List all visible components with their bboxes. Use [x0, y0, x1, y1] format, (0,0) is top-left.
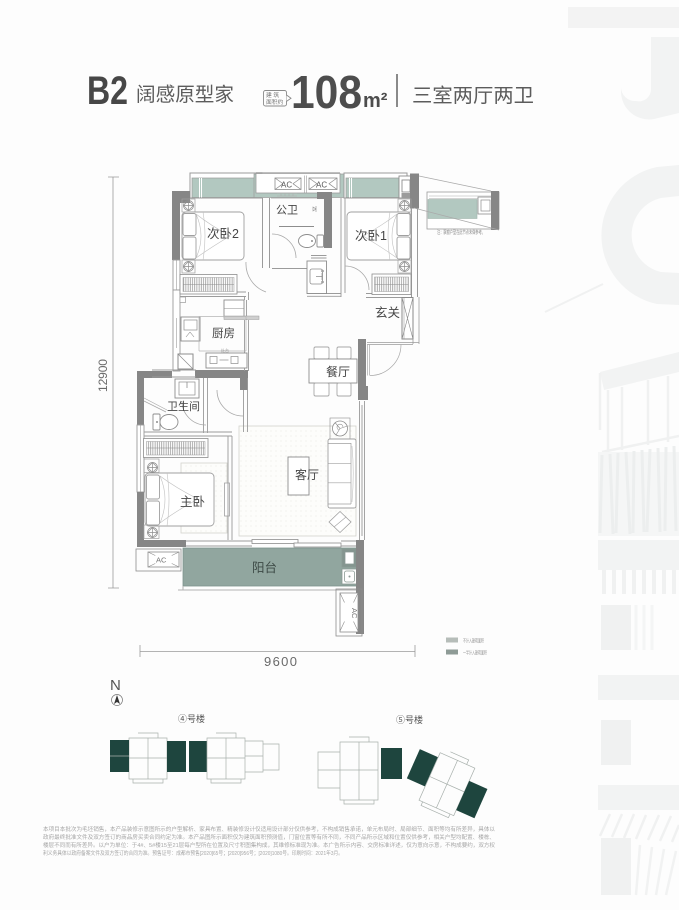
- svg-text:AC: AC: [350, 608, 359, 619]
- svg-text:本项目本批次为毛坯销售，本产品装修示意图所示的户型解析、家具: 本项目本批次为毛坯销售，本产品装修示意图所示的户型解析、家具布置、精装修设计仅适…: [43, 825, 496, 833]
- svg-text:⑤号楼: ⑤号楼: [396, 714, 423, 725]
- svg-text:公卫: 公卫: [276, 205, 298, 217]
- svg-text:不计入建筑面积: 不计入建筑面积: [463, 638, 484, 645]
- svg-text:一半计入建筑面积: 一半计入建筑面积: [463, 650, 487, 657]
- svg-text:玄关: 玄关: [375, 305, 400, 320]
- svg-text:面积约: 面积约: [266, 98, 284, 106]
- svg-text:阔感原型家: 阔感原型家: [136, 84, 234, 106]
- svg-text:AC: AC: [156, 556, 167, 565]
- svg-text:12900: 12900: [96, 359, 110, 392]
- svg-text:次卧1: 次卧1: [355, 229, 387, 243]
- svg-text:建 筑: 建 筑: [266, 91, 279, 99]
- svg-text:④号楼: ④号楼: [178, 713, 205, 724]
- svg-text:AC: AC: [316, 181, 327, 190]
- svg-text:108: 108: [291, 66, 362, 118]
- svg-text:注：飘窗户型在此节点未做参考。: 注：飘窗户型在此节点未做参考。: [437, 228, 485, 236]
- svg-text:餐厅: 餐厅: [326, 364, 350, 379]
- svg-text:灶台: 灶台: [221, 347, 229, 353]
- svg-text:B2: B2: [87, 69, 128, 113]
- svg-text:N: N: [110, 677, 121, 694]
- svg-text:主卧: 主卧: [180, 495, 205, 509]
- svg-text:次卧2: 次卧2: [207, 227, 239, 241]
- svg-text:AC: AC: [281, 181, 292, 190]
- svg-text:利义务具体以政府备案文件及双方签订的合同为准。预售证号：成都: 利义务具体以政府备案文件及双方签订的合同为准。预售证号：成都市预售[2020]6…: [43, 849, 343, 857]
- svg-text:三室两厅两卫: 三室两厅两卫: [412, 85, 534, 107]
- svg-text:卫生间: 卫生间: [167, 399, 200, 413]
- svg-text:客厅: 客厅: [295, 467, 319, 482]
- svg-text:厨房: 厨房: [212, 327, 235, 340]
- svg-text:政府最终批准文件及双方签订的商品房买卖合同约定为准。本产品图: 政府最终批准文件及双方签订的商品房买卖合同约定为准。本产品图所示面积仅为建筑面积…: [43, 833, 495, 841]
- svg-text:阳台: 阳台: [252, 560, 277, 575]
- svg-text:楼层不同而有所差异。以户为单位：于4#、5#楼15至21层每: 楼层不同而有所差异。以户为单位：于4#、5#楼15至21层每户型所在位置及尺寸积…: [43, 841, 496, 849]
- svg-text:9600: 9600: [264, 654, 297, 669]
- svg-text:m²: m²: [363, 90, 388, 112]
